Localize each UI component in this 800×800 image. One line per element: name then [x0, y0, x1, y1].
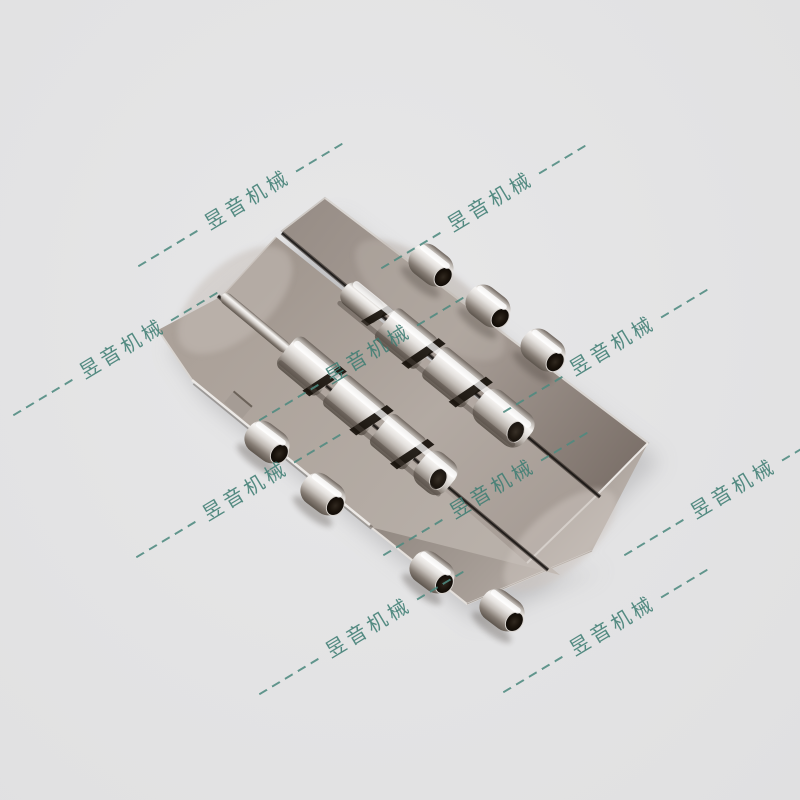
- product-photo-page: 昱音机械 昱音机械 昱音机械 昱音机械 昱音机械 昱音机械: [0, 0, 800, 800]
- product-photo: [0, 0, 800, 800]
